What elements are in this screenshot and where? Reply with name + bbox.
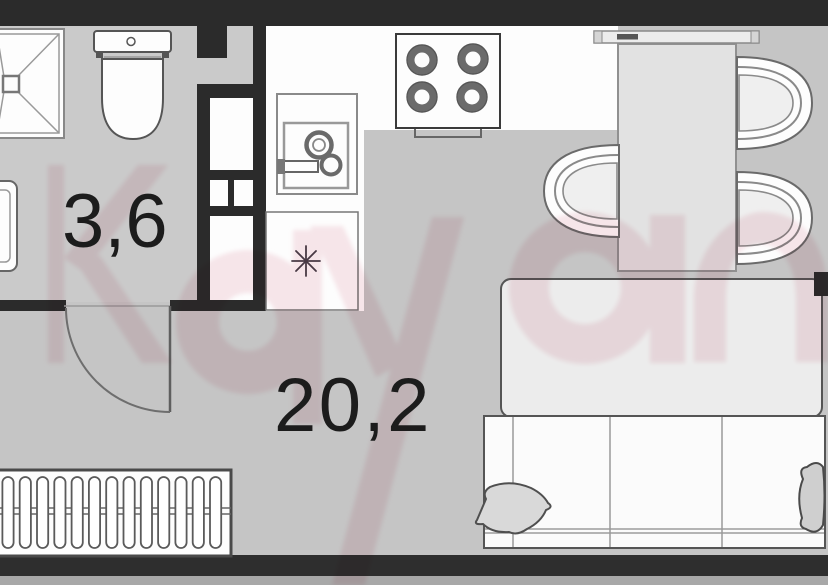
- svg-text:3,6: 3,6: [62, 179, 168, 264]
- svg-text:20,2: 20,2: [274, 363, 432, 448]
